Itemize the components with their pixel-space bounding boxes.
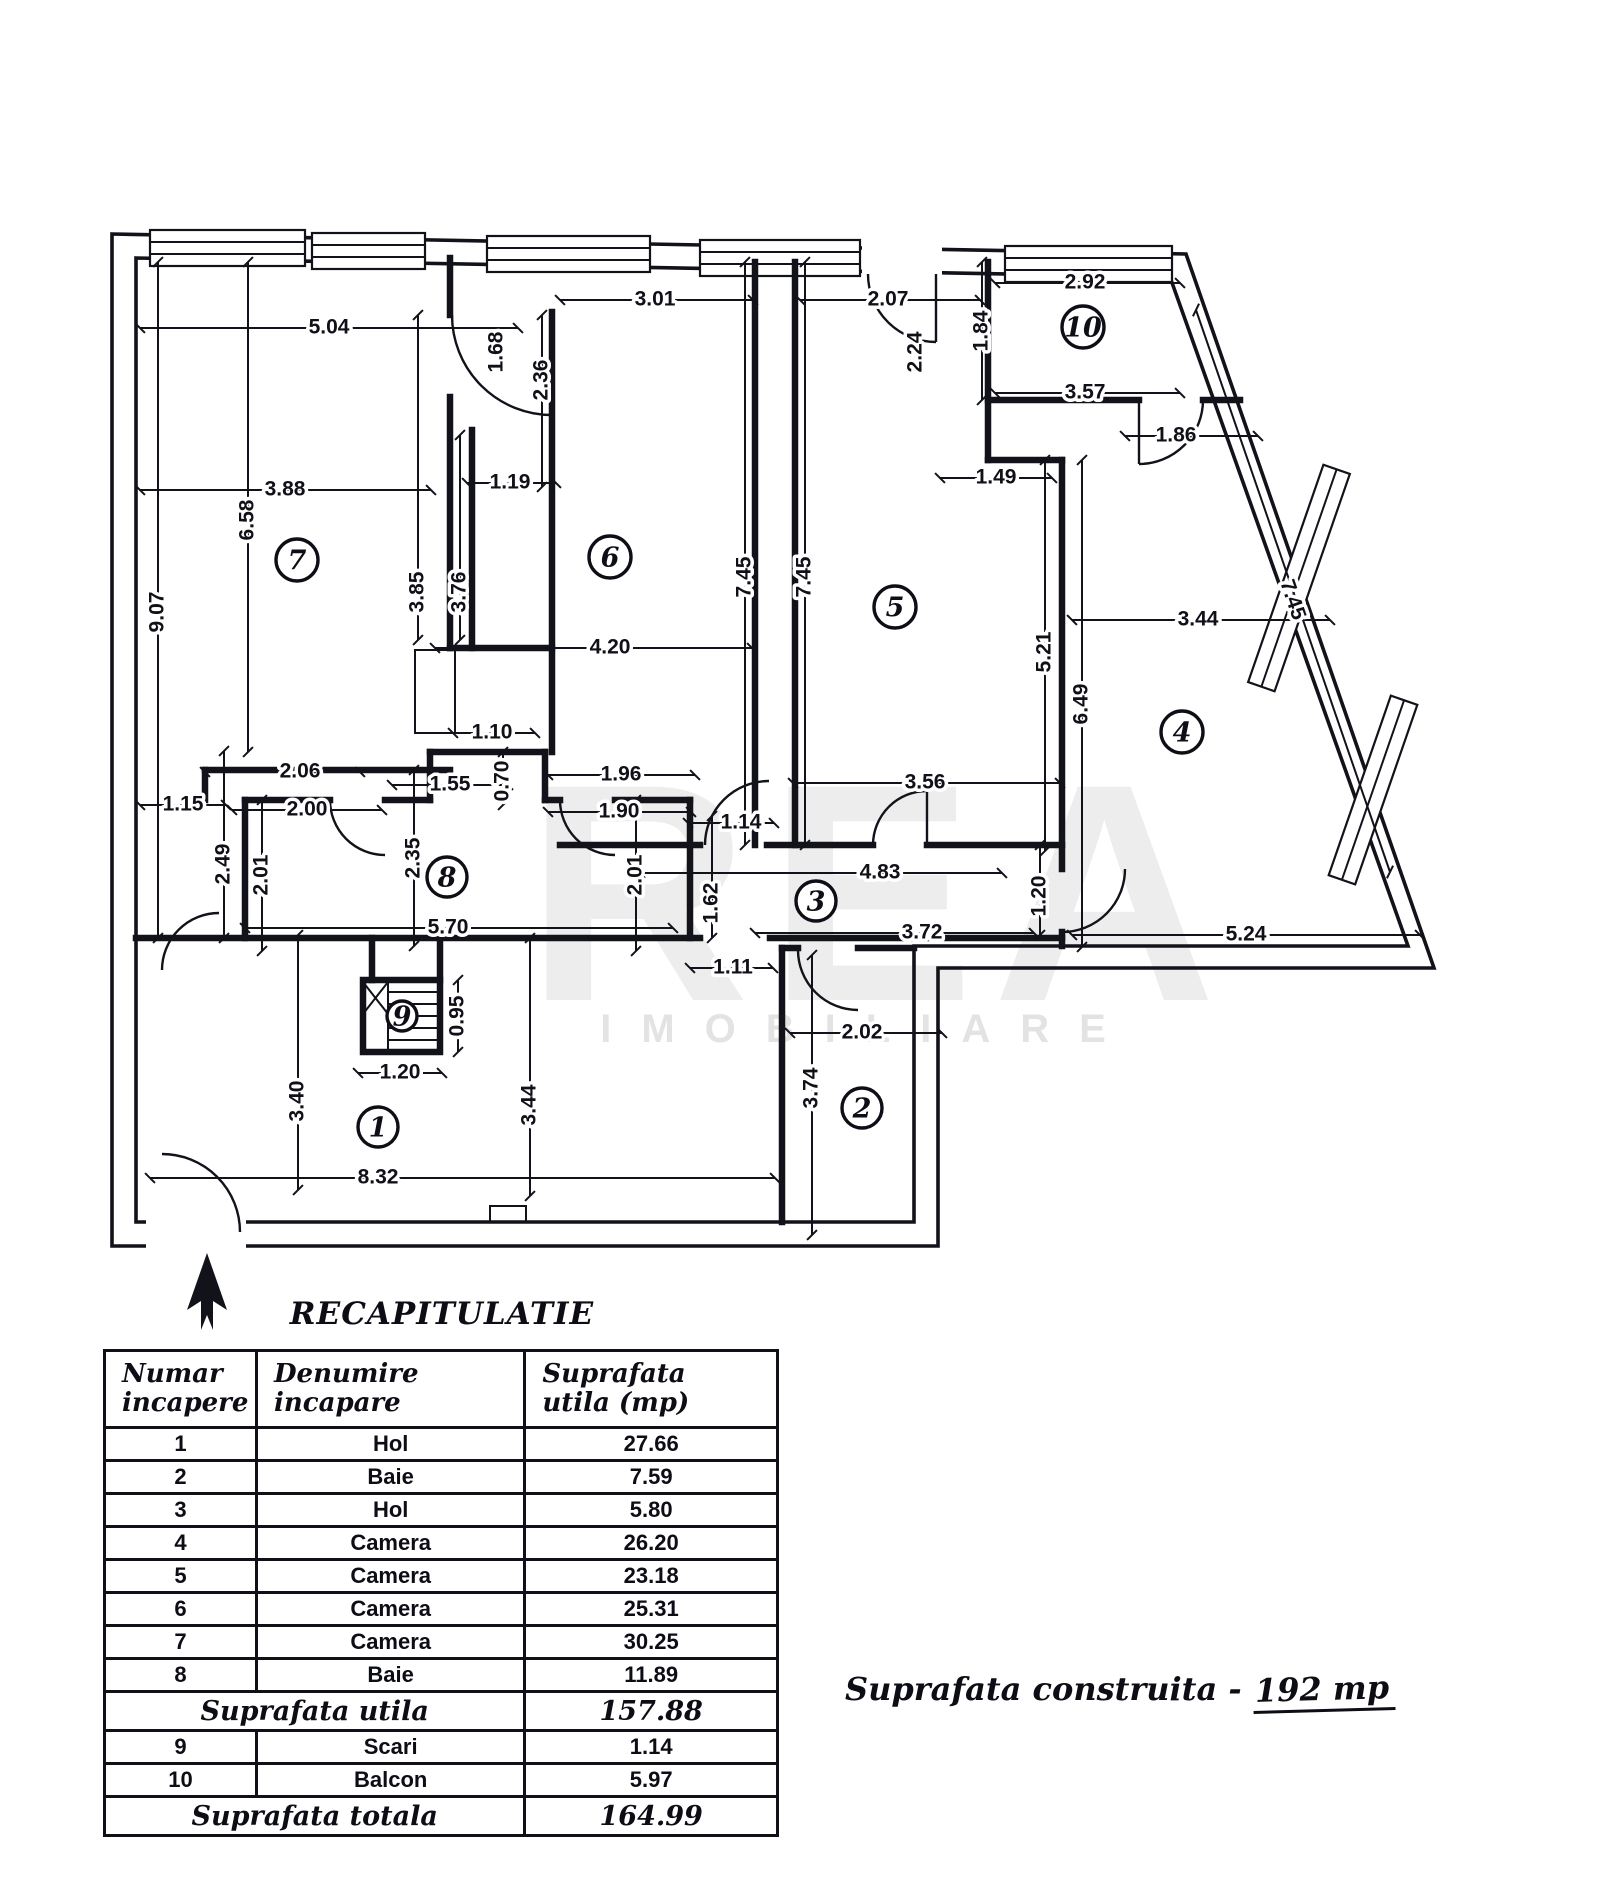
dim-label: 3.76	[448, 572, 471, 613]
room-area-cell: 27.66	[525, 1428, 778, 1461]
dim-label: 5.70	[428, 916, 469, 939]
dim-label: 3.01	[635, 288, 676, 311]
room-name-cell: Scari	[256, 1731, 524, 1764]
recap-col-header: Denumireincapare	[256, 1351, 524, 1428]
dim-label: 1.86	[1156, 424, 1197, 447]
summary-row: Suprafata utila157.88	[105, 1692, 778, 1731]
duct-shaft	[415, 650, 455, 733]
recap-table: NumarincapereDenumireincapareSuprafataut…	[103, 1349, 779, 1837]
dim-label: 2.06	[280, 760, 321, 783]
dim-label: 6.58	[236, 499, 259, 540]
room-number-cell: 2	[105, 1461, 257, 1494]
dim-label: 9.07	[146, 592, 169, 633]
door-arc-icon	[162, 913, 219, 970]
summary-row: Suprafata totala164.99	[105, 1797, 778, 1836]
room-area-cell: 5.97	[525, 1764, 778, 1797]
dim-label: 3.44	[518, 1084, 541, 1125]
dim-label: 3.57	[1065, 381, 1106, 404]
dim-label: 1.96	[601, 763, 642, 786]
room-number-cell: 4	[105, 1527, 257, 1560]
dim-label: 1.19	[490, 471, 531, 494]
dim-label: 5.21	[1033, 631, 1056, 672]
dim-label: 1.90	[599, 800, 640, 823]
room-row: 6Camera25.31	[105, 1593, 778, 1626]
room-area-cell: 11.89	[525, 1659, 778, 1692]
room-name-cell: Baie	[256, 1461, 524, 1494]
door-opening-mask	[146, 1212, 246, 1252]
dim-label: 1.55	[430, 773, 471, 796]
dim-label: 1.84	[970, 310, 993, 351]
room-number: 5	[886, 593, 905, 624]
entrance-arrow	[187, 1253, 227, 1330]
window-icon	[700, 240, 860, 276]
dim-label: 4.20	[590, 636, 631, 659]
dim-label: 0.70	[491, 761, 514, 802]
scanned-floor-plan-page: { "title": "RECAPITULATIE", "watermark":…	[0, 0, 1624, 1880]
dim-label: 2.00	[287, 798, 328, 821]
dim-label: 2.92	[1065, 271, 1106, 294]
dim-label: 3.74	[800, 1067, 823, 1108]
dim-label: 1.20	[1028, 876, 1051, 917]
dim-label: 1.11	[713, 956, 753, 979]
dim-label: 3.85	[406, 571, 429, 612]
summary-value: 164.99	[525, 1797, 778, 1836]
dim-label: 0.95	[446, 995, 469, 1036]
room-number: 1	[369, 1113, 388, 1144]
dim-label: 8.32	[358, 1166, 399, 1189]
dim-label: 3.56	[905, 771, 946, 794]
dim-label: 5.24	[1226, 923, 1267, 946]
dim-label: 1.14	[721, 811, 762, 834]
built-area-value: 192 mp	[1252, 1668, 1395, 1714]
room-name-cell: Camera	[256, 1626, 524, 1659]
dim-label: 1.20	[380, 1061, 421, 1084]
dim-label: 3.88	[265, 478, 306, 501]
summary-value: 157.88	[525, 1692, 778, 1731]
built-area-dash: -	[1228, 1670, 1241, 1708]
room-row: 5Camera23.18	[105, 1560, 778, 1593]
room-number: 3	[807, 887, 826, 918]
room-number-cell: 5	[105, 1560, 257, 1593]
room-number-cell: 8	[105, 1659, 257, 1692]
room-name-cell: Hol	[256, 1428, 524, 1461]
room-row: 9Scari1.14	[105, 1731, 778, 1764]
room-area-cell: 5.80	[525, 1494, 778, 1527]
dim-label: 2.01	[624, 854, 647, 895]
window-icon	[150, 230, 305, 266]
dim-label: 2.07	[868, 288, 909, 311]
room-name-cell: Camera	[256, 1560, 524, 1593]
dim-label: 2.24	[904, 331, 927, 372]
room-number: 7	[288, 546, 307, 577]
room-number: 4	[1173, 718, 1192, 749]
dim-label: 6.49	[1070, 684, 1093, 725]
dim-label: 1.68	[485, 331, 508, 372]
wall-notch	[490, 1206, 526, 1222]
room-number: 2	[852, 1094, 872, 1125]
summary-label: Suprafata utila	[105, 1692, 525, 1731]
room-name-cell: Balcon	[256, 1764, 524, 1797]
room-row: 2Baie7.59	[105, 1461, 778, 1494]
room-number-cell: 6	[105, 1593, 257, 1626]
dim-label: 3.44	[1178, 608, 1219, 631]
dim-label: 2.36	[530, 360, 553, 401]
dim-label: 7.45	[793, 556, 816, 597]
room-name-cell: Baie	[256, 1659, 524, 1692]
dim-label: 5.04	[309, 316, 350, 339]
dim-label: 2.02	[842, 1021, 883, 1044]
room-row: 4Camera26.20	[105, 1527, 778, 1560]
dim-label: 3.40	[286, 1081, 309, 1122]
window-icon	[487, 236, 650, 272]
dim-label: 1.62	[700, 883, 723, 924]
door-arc-icon	[330, 800, 385, 855]
dim-label: 3.72	[902, 921, 943, 944]
room-number-cell: 9	[105, 1731, 257, 1764]
room-area-cell: 30.25	[525, 1626, 778, 1659]
room-number: 9	[393, 1002, 412, 1033]
window-icon	[312, 233, 425, 269]
room-area-cell: 26.20	[525, 1527, 778, 1560]
dim-label: 2.49	[212, 844, 235, 885]
room-area-cell: 1.14	[525, 1731, 778, 1764]
room-name-cell: Camera	[256, 1527, 524, 1560]
recap-col-header: Suprafatautila (mp)	[525, 1351, 778, 1428]
summary-label: Suprafata totala	[105, 1797, 525, 1836]
room-number-cell: 3	[105, 1494, 257, 1527]
room-name-cell: Camera	[256, 1593, 524, 1626]
room-number-cell: 10	[105, 1764, 257, 1797]
room-row: 7Camera30.25	[105, 1626, 778, 1659]
recap-table-head: NumarincapereDenumireincapareSuprafataut…	[105, 1351, 778, 1428]
room-area-cell: 25.31	[525, 1593, 778, 1626]
built-area-label: Suprafata construita	[845, 1670, 1217, 1708]
dim-label: 2.35	[402, 837, 425, 878]
dim-label: 7.45	[733, 556, 756, 597]
room-number: 6	[601, 543, 620, 574]
dim-label: 1.15	[163, 793, 204, 816]
room-number-cell: 7	[105, 1626, 257, 1659]
dim-label: 4.83	[860, 861, 901, 884]
room-row: 10Balcon5.97	[105, 1764, 778, 1797]
recap-col-header: Numarincapere	[105, 1351, 257, 1428]
room-number: 10	[1064, 313, 1102, 344]
dim-label: 1.10	[472, 721, 513, 744]
door-opening-mask	[862, 228, 942, 282]
recap-table-body: 1Hol27.662Baie7.593Hol5.804Camera26.205C…	[105, 1428, 778, 1836]
room-area-cell: 23.18	[525, 1560, 778, 1593]
room-row: 3Hol5.80	[105, 1494, 778, 1527]
room-row: 1Hol27.66	[105, 1428, 778, 1461]
room-row: 8Baie11.89	[105, 1659, 778, 1692]
built-area-note: Suprafata construita - 192 mp	[845, 1670, 1465, 1712]
dim-label: 2.01	[250, 854, 273, 895]
recap-title: RECAPITULATIE	[232, 1296, 652, 1332]
dim-label: 1.49	[976, 466, 1017, 489]
room-number: 8	[437, 863, 457, 894]
room-name-cell: Hol	[256, 1494, 524, 1527]
room-area-cell: 7.59	[525, 1461, 778, 1494]
room-number-cell: 1	[105, 1428, 257, 1461]
